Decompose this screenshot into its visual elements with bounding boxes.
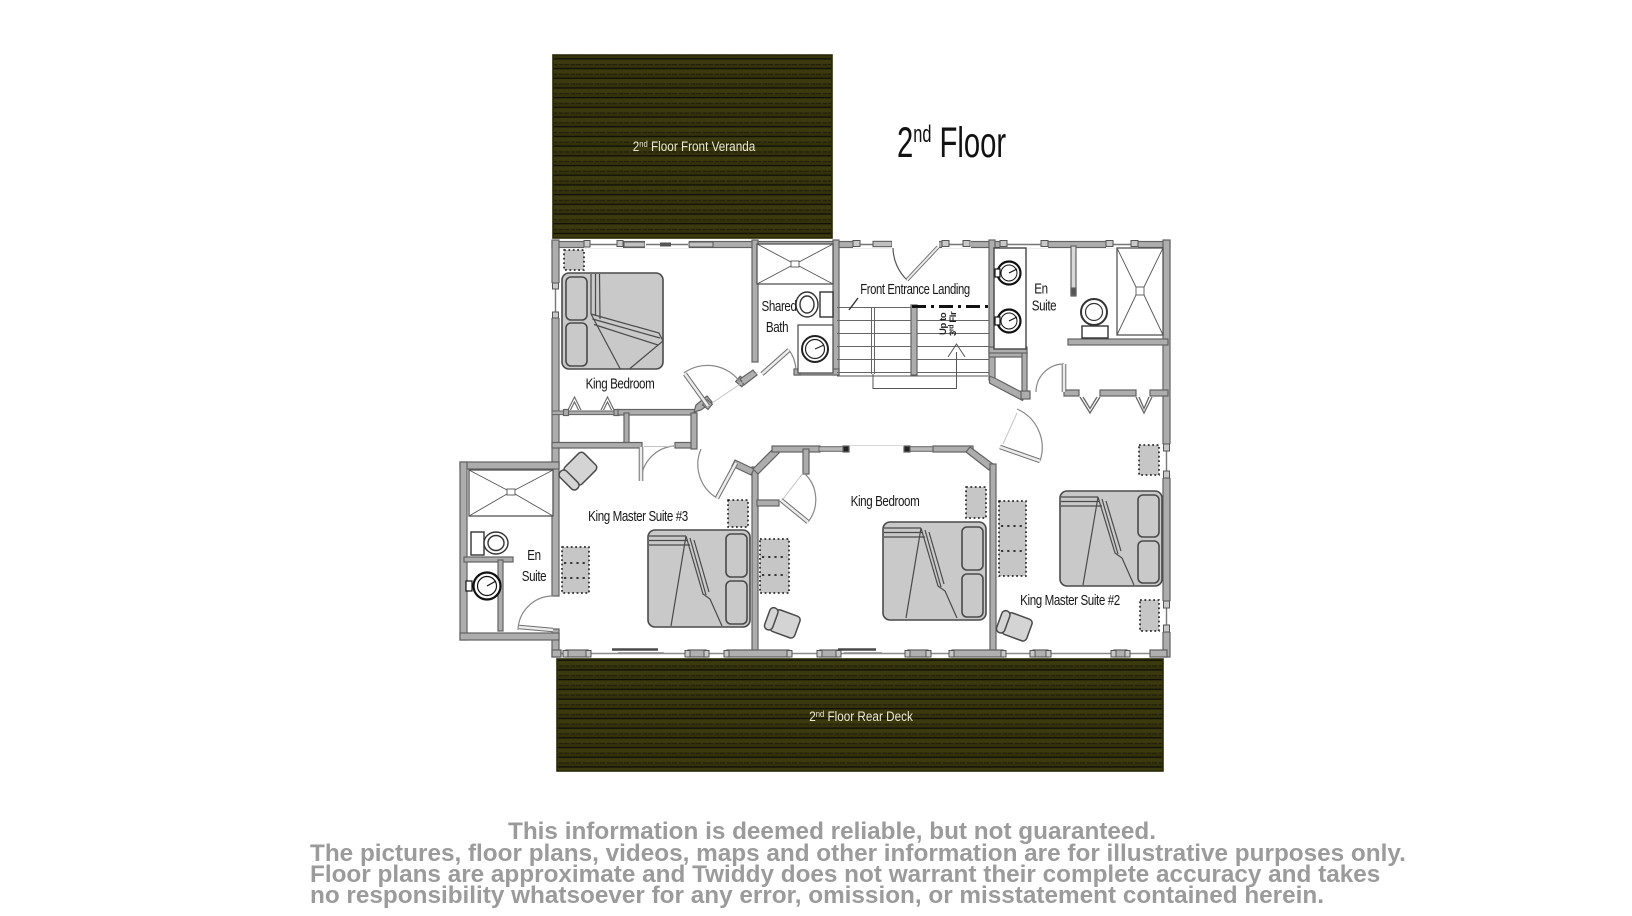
svg-text:Front Entrance Landing: Front Entrance Landing <box>860 281 970 298</box>
svg-text:3rd Flr: 3rd Flr <box>948 311 959 336</box>
svg-text:Bath: Bath <box>766 319 788 336</box>
svg-text:King Bedroom: King Bedroom <box>851 493 920 510</box>
svg-text:2nd Floor Front Veranda: 2nd Floor Front Veranda <box>633 138 756 154</box>
svg-text:2nd Floor Rear Deck: 2nd Floor Rear Deck <box>809 708 913 724</box>
svg-text:King Master Suite #2: King Master Suite #2 <box>1020 592 1120 609</box>
svg-text:En: En <box>527 547 541 564</box>
svg-text:Suite: Suite <box>522 568 547 585</box>
svg-text:King Bedroom: King Bedroom <box>586 375 655 392</box>
svg-text:King Master Suite #3: King Master Suite #3 <box>588 508 688 525</box>
svg-text:Suite: Suite <box>1032 297 1057 314</box>
svg-text:no responsibility whatsoever f: no responsibility whatsoever for any err… <box>310 882 1324 909</box>
svg-text:Shared: Shared <box>762 298 797 315</box>
svg-text:En: En <box>1034 280 1048 297</box>
